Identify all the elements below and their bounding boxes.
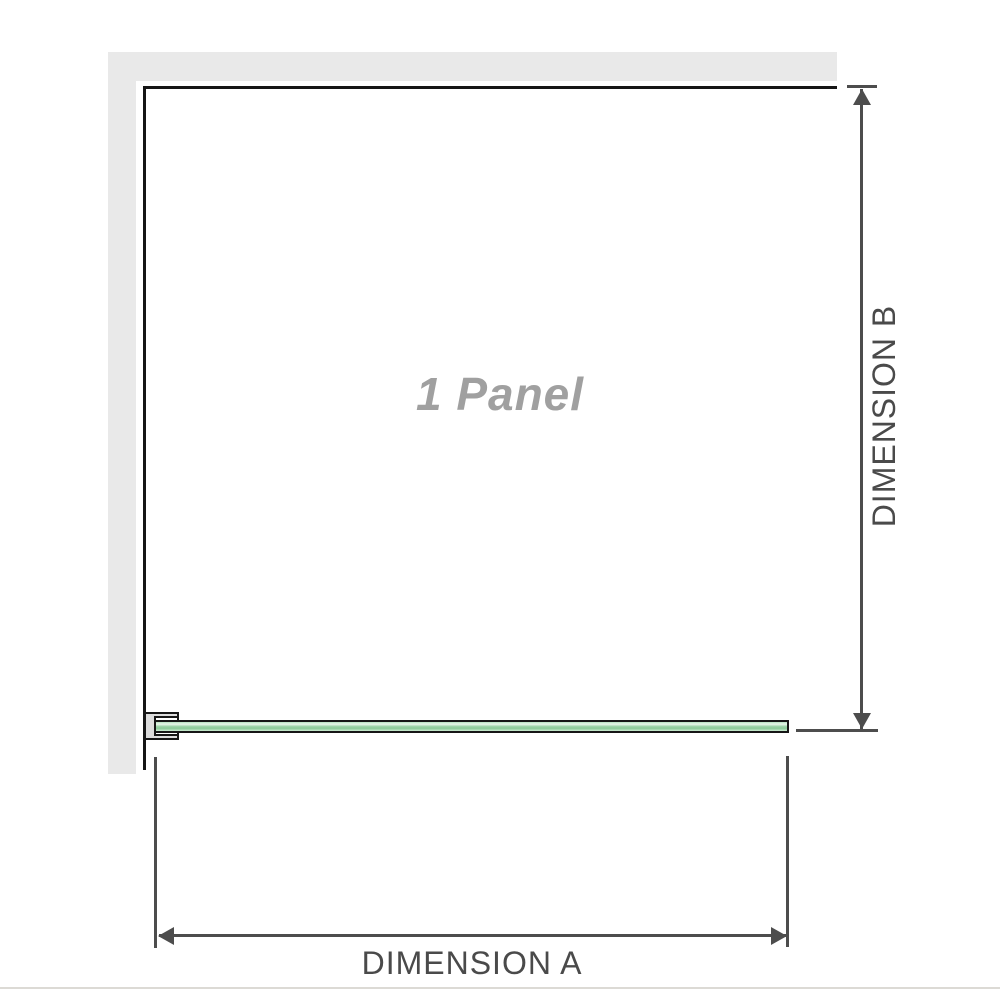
dimension-a-label: DIMENSION A bbox=[312, 944, 632, 982]
arrow-up-icon bbox=[853, 89, 871, 105]
arrow-down-icon bbox=[853, 713, 871, 729]
dimension-b-line bbox=[860, 89, 863, 729]
dimension-b-label: DIMENSION B bbox=[866, 301, 902, 531]
dimension-b-tick-bottom bbox=[796, 729, 878, 732]
arrow-right-icon bbox=[771, 927, 787, 945]
panel-frame-left-line bbox=[143, 86, 146, 770]
dimension-b-tick-top bbox=[847, 85, 877, 88]
shower-panel-dimension-diagram: 1 Panel DIMENSION B DIMENSION A bbox=[0, 0, 1000, 1000]
wall-left bbox=[108, 52, 136, 774]
dimension-a-extension-line-left bbox=[154, 757, 157, 948]
dimension-a-extension-line-right bbox=[786, 756, 789, 947]
glass-panel bbox=[156, 720, 789, 733]
bottom-divider bbox=[0, 987, 1000, 989]
panel-frame-top-line bbox=[143, 86, 837, 89]
arrow-left-icon bbox=[158, 927, 174, 945]
wall-top bbox=[108, 52, 837, 81]
dimension-a-line bbox=[159, 934, 787, 937]
panel-count-label: 1 Panel bbox=[370, 366, 630, 422]
